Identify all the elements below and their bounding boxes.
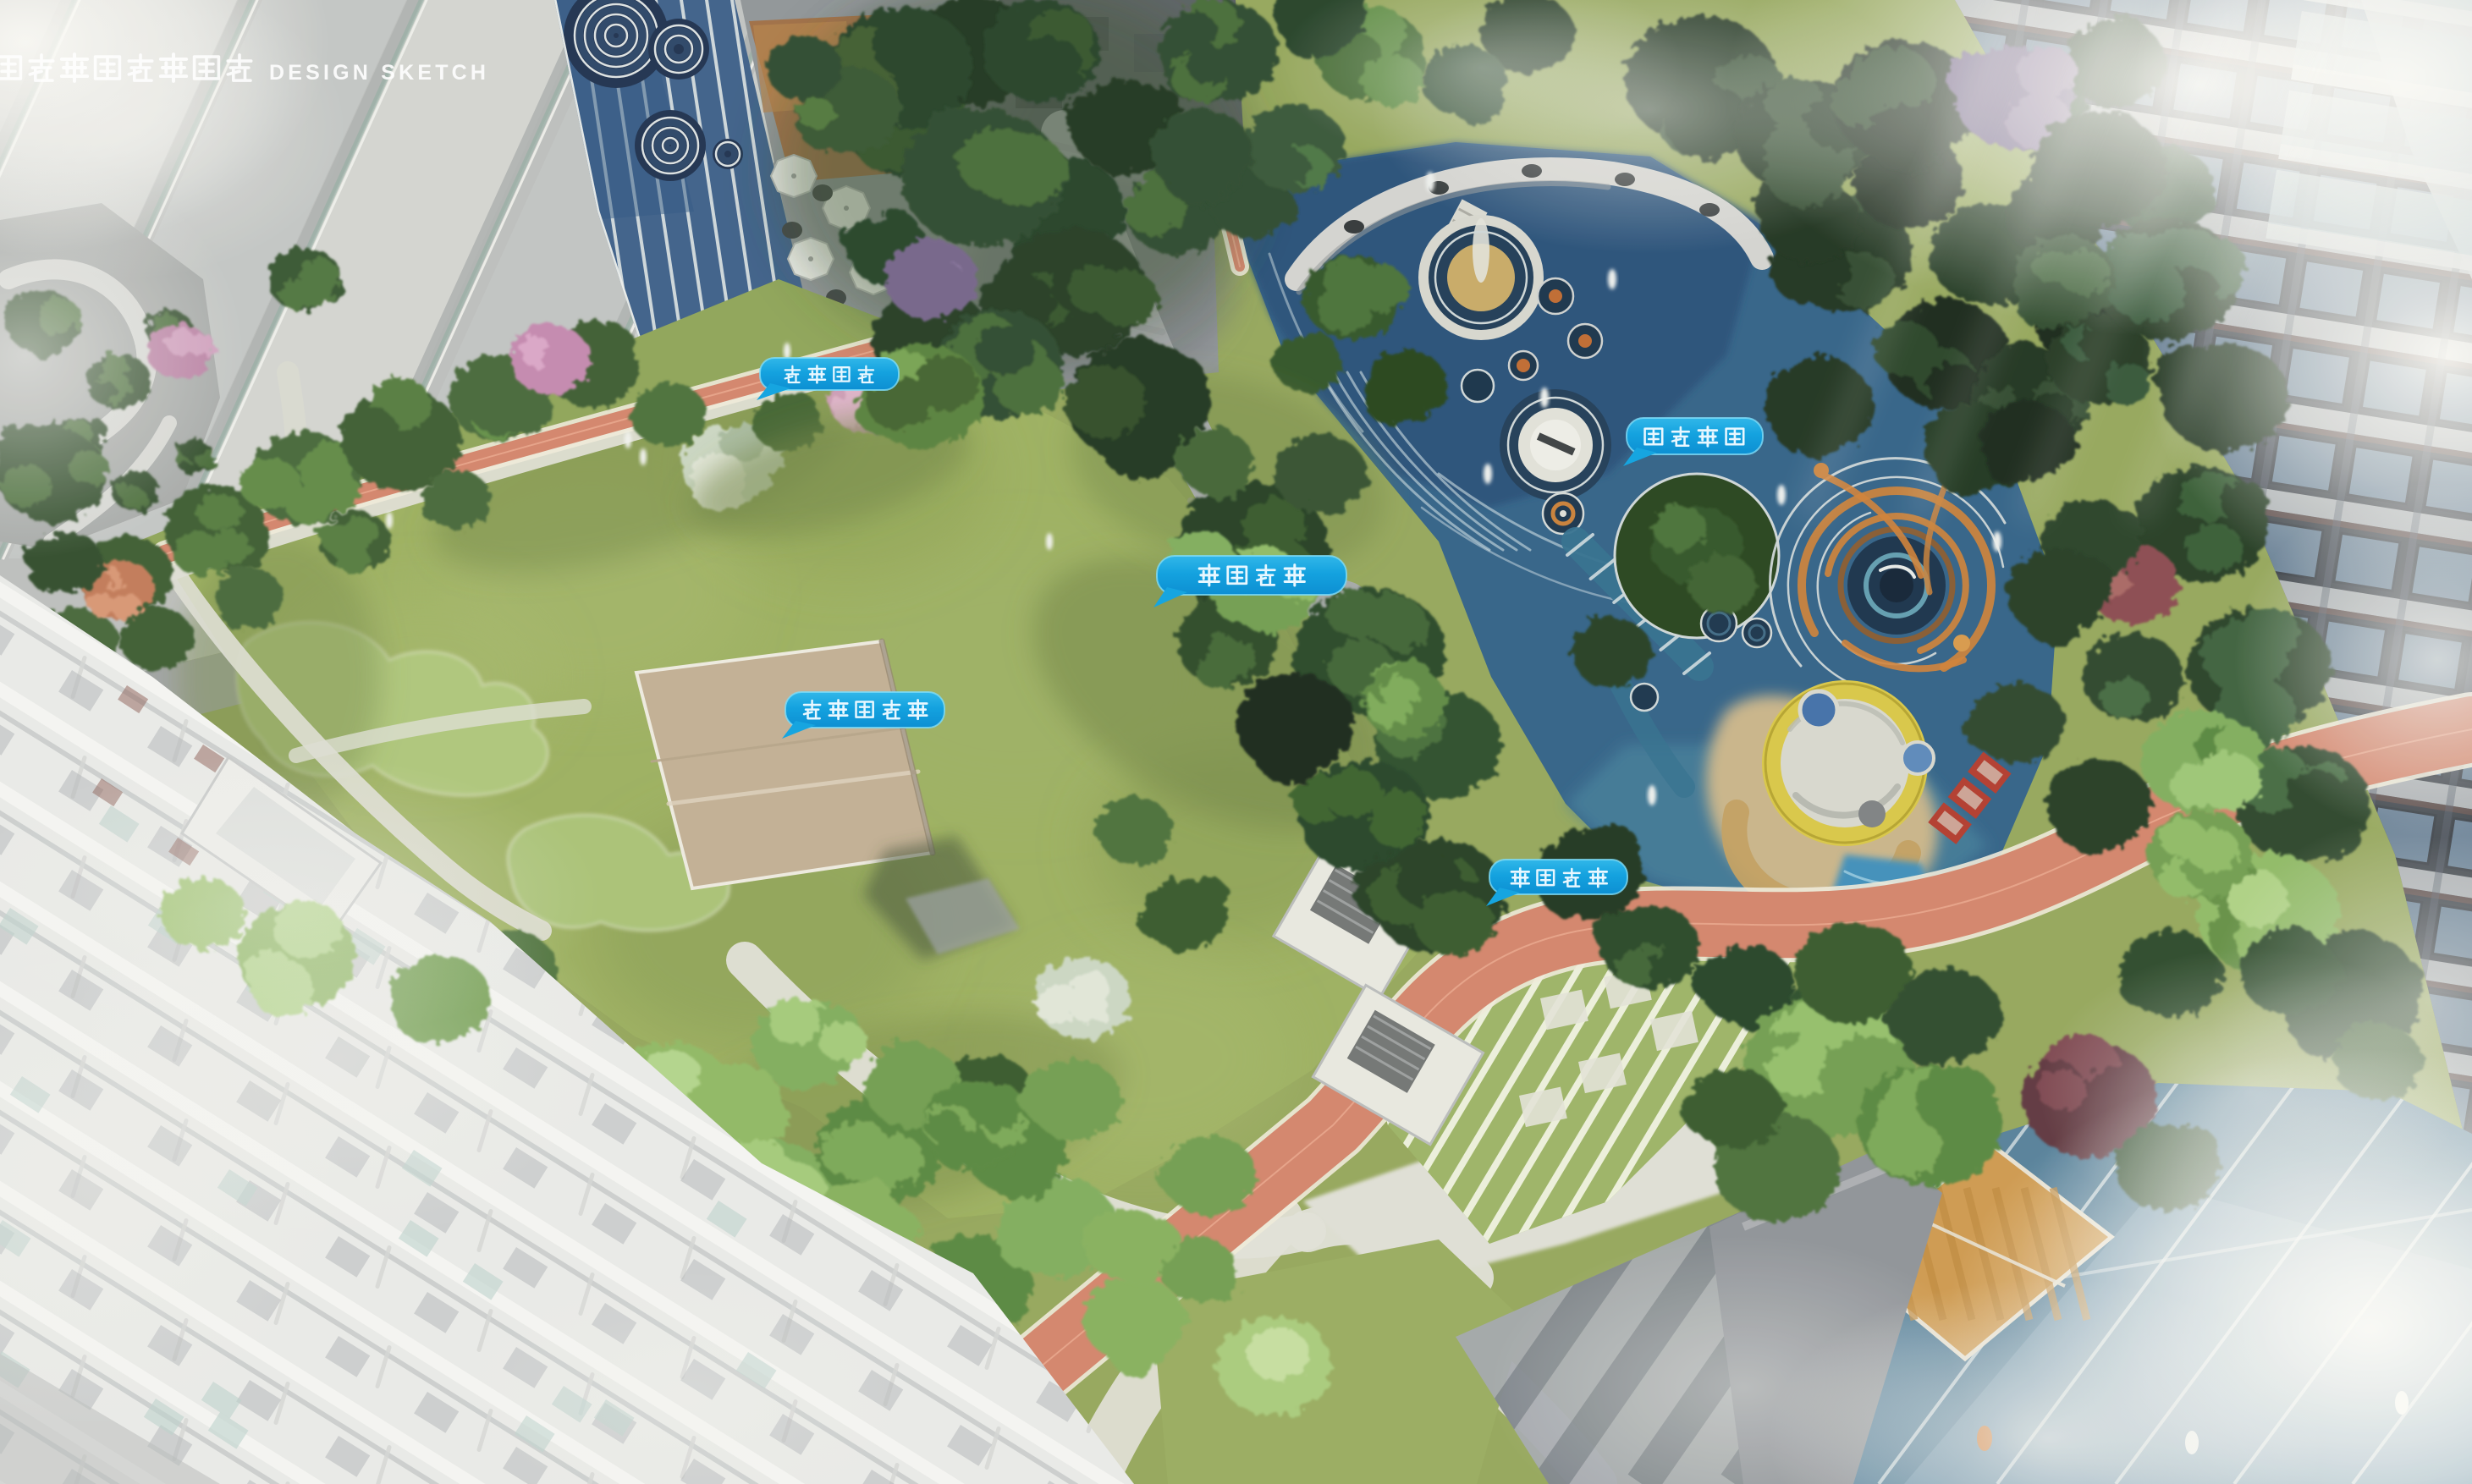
svg-text:DESIGN SKETCH: DESIGN SKETCH xyxy=(269,61,489,85)
